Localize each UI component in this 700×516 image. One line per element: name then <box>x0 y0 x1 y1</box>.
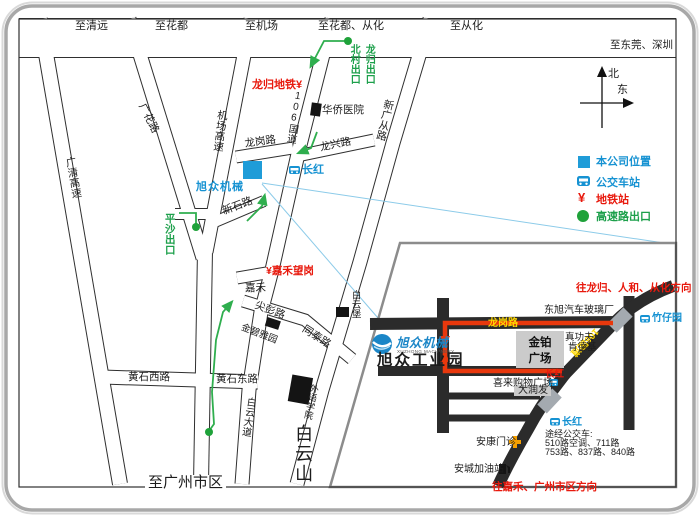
inset-longgang-road-label: 龙岗路 <box>488 318 518 329</box>
road-label-to-guangzhou: 至广州市区 <box>145 475 226 492</box>
bus-stop-icon <box>640 315 650 323</box>
place-label-ankang-clinic: 安康门诊 <box>476 437 516 448</box>
inset-direction-south: 往嘉禾、广州市区方向 <box>492 482 597 494</box>
road-label-to-dongguan-shenzhen: 至东莞、深圳 <box>610 40 673 52</box>
legend-company-icon <box>578 156 590 168</box>
compass-east-label: 东 <box>617 84 628 96</box>
xuzhong-brand-text: 旭众机械 <box>396 336 448 350</box>
exit-label-pingsha: 平沙出口 <box>163 213 175 255</box>
road-label-to-huadu: 至花都 <box>155 20 188 32</box>
road-label-to-airport: 至机场 <box>245 20 278 32</box>
legend-bus-icon <box>577 176 590 187</box>
highway-exit-dot <box>205 428 213 436</box>
bus-stop-icon <box>550 418 560 426</box>
jinbo-line2: 广场 <box>529 350 552 366</box>
station-name: 嘉禾望岗 <box>272 265 314 277</box>
bus-stop-zhuziyuan: 竹仔园 <box>652 313 682 324</box>
legend-metro-icon: ¥ <box>578 191 585 206</box>
place-label-baiyunshan: 白云山 <box>293 424 313 484</box>
highway-exit-dot <box>192 223 200 231</box>
road-label-to-huadu-conghua: 至花都、从化 <box>318 20 384 32</box>
inset-dongxu-glass-label: 东旭汽车玻璃厂 <box>544 305 614 316</box>
legend-bus-label: 公交车站 <box>596 177 640 189</box>
exit-label-longgui: 龙归出口 <box>363 44 374 84</box>
bus-stop-changhong-blue: 长红 <box>562 417 582 428</box>
legend-company-label: 本公司位置 <box>596 156 651 168</box>
jinbo-plaza: 金铂 广场 <box>516 331 564 368</box>
place-label-jiahe: 嘉禾 <box>245 283 266 295</box>
metro-station-jiahewanggang: ¥嘉禾望岗 <box>266 266 314 278</box>
station-name: 龙归地铁 <box>252 79 296 91</box>
inset-direction-north: 往龙归、人和、从化方向 <box>576 283 692 295</box>
bus-routes-line2: 753路、837路、840路 <box>545 447 635 457</box>
xuzhong-industrial-park-label: 旭众工业园 <box>377 352 465 369</box>
metro-icon: ¥ <box>296 79 302 91</box>
exit-label-beicun: 北村出口 <box>348 44 359 84</box>
metro-station-longgui: 龙归地铁¥ <box>252 79 302 91</box>
road-label-huangshi-west: 黄石西路 <box>128 372 170 384</box>
road-label-huangshi-east: 黄石东路 <box>216 374 258 386</box>
compass-north-label: 北 <box>608 68 619 80</box>
legend-metro-label: 地铁站 <box>596 194 629 206</box>
place-label-darunfa: 大润发 <box>518 385 548 396</box>
jinbo-line1: 金铂 <box>529 334 552 350</box>
place-label-kendeji: 肯德基 <box>568 343 597 354</box>
road-label-to-qingyuan: 至清远 <box>75 20 108 32</box>
company-location-marker <box>243 161 262 179</box>
compass <box>580 66 634 128</box>
bus-stop-icon <box>289 166 300 175</box>
road-label-to-conghua: 至从化 <box>450 20 483 32</box>
place-label-baiyunbao: 白云堡 <box>349 290 360 319</box>
place-label-ancheng-gas: 安城加油站 <box>454 464 504 475</box>
map-canvas: 至清远 至花都 至机场 至花都、从化 至从化 至东莞、深圳 广清高速 广花路 机… <box>0 0 700 516</box>
place-label-xuzhong-machinery: 旭众机械 <box>196 181 244 193</box>
bus-stop-changhong: 长红 <box>302 164 324 176</box>
place-label-huaqiao-hospital: 华侨医院 <box>322 105 364 117</box>
legend-exit-icon <box>577 210 589 222</box>
legend-exit-label: 高速路出口 <box>596 211 651 223</box>
